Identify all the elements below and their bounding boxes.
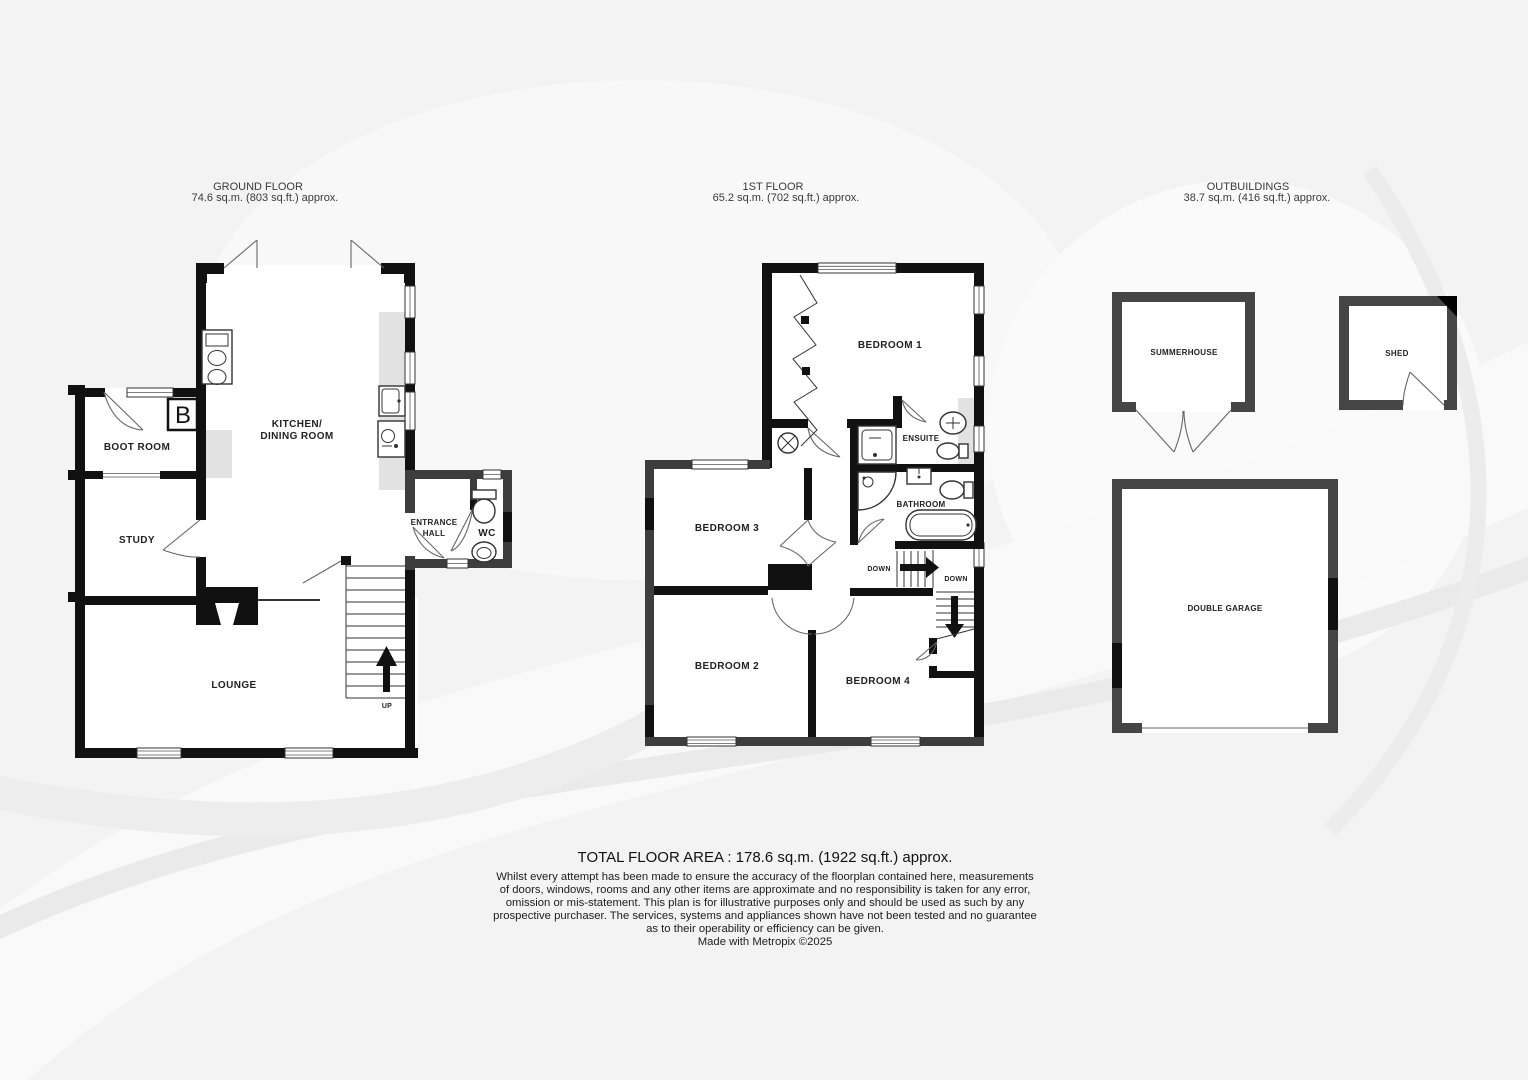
dishwasher-icon xyxy=(378,421,405,457)
entrance-hall-label-1: ENTRANCE xyxy=(411,518,458,527)
bedroom3-window-top xyxy=(692,460,748,469)
bedroom3-label: BEDROOM 3 xyxy=(695,523,759,534)
kitchen-window-right xyxy=(405,286,415,430)
boot-room-window xyxy=(127,388,173,397)
wc-window-top xyxy=(483,470,501,479)
ensuite-toilet-icon xyxy=(937,443,968,459)
wc-toilet-icon xyxy=(472,490,496,523)
bedroom4-label: BEDROOM 4 xyxy=(846,676,910,687)
disclaimer-line-2: of doors, windows, rooms and any other i… xyxy=(500,884,1031,896)
bedroom4-window-bottom xyxy=(871,737,920,746)
double-garage: DOUBLE GARAGE xyxy=(1112,479,1338,733)
bathtub-icon xyxy=(906,510,976,540)
bedroom2-label: BEDROOM 2 xyxy=(695,661,759,672)
wc-label: WC xyxy=(478,528,495,539)
bedroom1-window-top xyxy=(818,263,896,273)
disclaimer-line-3: omission or mis-statement. This plan is … xyxy=(506,897,1025,909)
up-arrow xyxy=(383,664,390,692)
boot-room-label: BOOT ROOM xyxy=(104,442,170,453)
boiler-box: B xyxy=(168,399,197,430)
bedroom2-window-bottom xyxy=(687,737,736,746)
made-with-credit: Made with Metropix ©2025 xyxy=(698,936,833,948)
ensuite-basin-icon xyxy=(940,412,966,434)
summerhouse-label: SUMMERHOUSE xyxy=(1150,348,1218,357)
first-floor-area: 65.2 sq.m. (702 sq.ft.) approx. xyxy=(713,192,860,204)
outbuildings-area: 38.7 sq.m. (416 sq.ft.) approx. xyxy=(1184,192,1331,204)
boiler-label: B xyxy=(175,402,191,429)
ground-floor-area: 74.6 sq.m. (803 sq.ft.) approx. xyxy=(192,192,339,204)
kitchen-sink-icon xyxy=(379,386,405,416)
bedroom1-label: BEDROOM 1 xyxy=(858,340,922,351)
kitchen-label-1: KITCHEN/ xyxy=(272,419,322,430)
kitchen-counter-left xyxy=(206,430,232,478)
bathroom-toilet-icon xyxy=(940,481,973,499)
light-symbol-icon xyxy=(778,433,798,453)
bathroom-label: BATHROOM xyxy=(897,500,946,509)
down-label-2: DOWN xyxy=(944,576,967,583)
fireplace xyxy=(196,587,258,625)
hall-window-bottom xyxy=(447,559,468,568)
down-label-1: DOWN xyxy=(867,566,890,573)
wc-basin-icon xyxy=(472,542,496,562)
ensuite-label: ENSUITE xyxy=(903,434,940,443)
shed-label: SHED xyxy=(1385,349,1408,358)
lounge-window-2 xyxy=(285,748,333,758)
lounge-label: LOUNGE xyxy=(211,680,256,691)
ensuite-shower-icon xyxy=(858,426,896,464)
up-label: UP xyxy=(382,703,392,710)
study-label: STUDY xyxy=(119,535,155,546)
disclaimer-line-4: prospective purchaser. The services, sys… xyxy=(493,910,1037,922)
disclaimer-line-5: as to their operability or efficiency ca… xyxy=(646,923,884,935)
shed: SHED xyxy=(1339,296,1457,410)
lounge-window-1 xyxy=(137,748,181,758)
floorplan-canvas: GROUND FLOOR 74.6 sq.m. (803 sq.ft.) app… xyxy=(0,0,1528,1080)
kitchen-label-2: DINING ROOM xyxy=(260,431,333,442)
disclaimer-line-1: Whilst every attempt has been made to en… xyxy=(496,871,1034,883)
bathroom-sink-icon xyxy=(907,468,931,484)
entrance-hall-label-2: HALL xyxy=(423,529,446,538)
double-garage-label: DOUBLE GARAGE xyxy=(1187,604,1262,613)
stove-icon xyxy=(202,330,232,385)
total-floor-area: TOTAL FLOOR AREA : 178.6 sq.m. (1922 sq.… xyxy=(578,849,953,866)
floorplan-page: GROUND FLOOR 74.6 sq.m. (803 sq.ft.) app… xyxy=(0,0,1528,1080)
